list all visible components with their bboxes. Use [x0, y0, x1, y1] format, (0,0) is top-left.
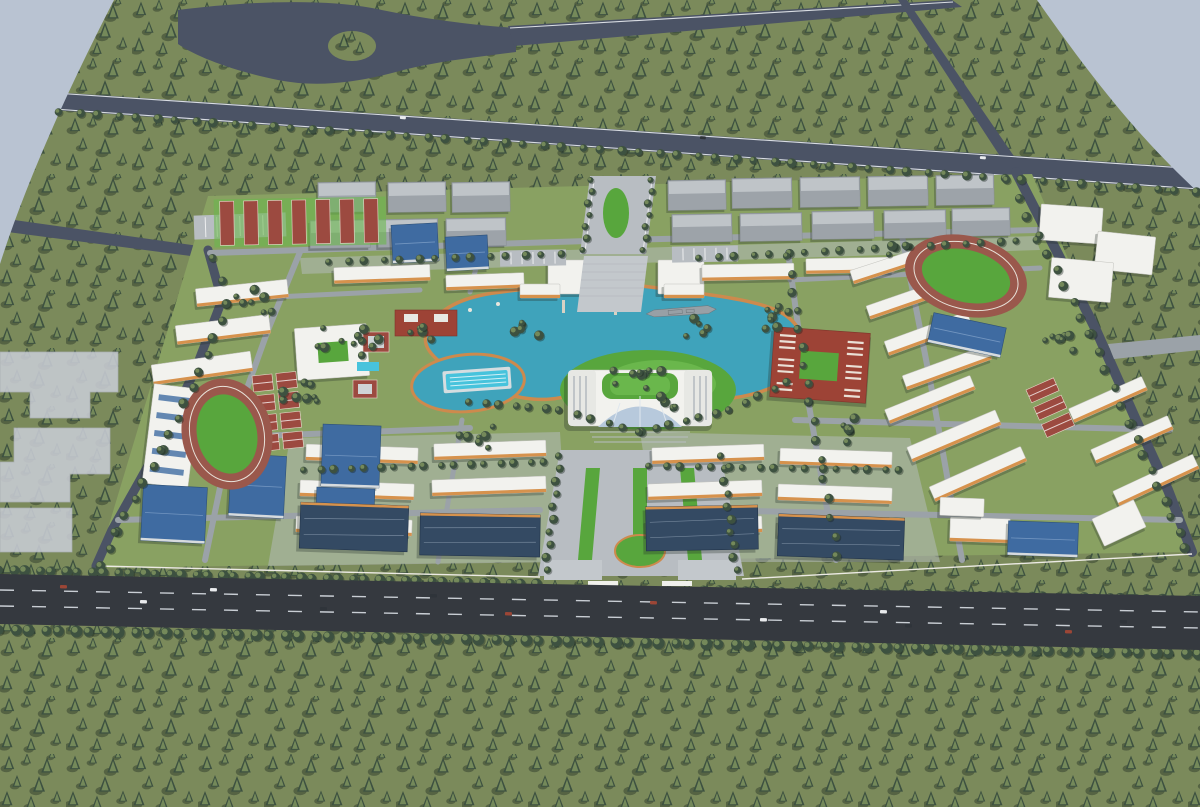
building [443, 273, 524, 294]
building [662, 284, 705, 301]
warehouse [450, 181, 511, 215]
blue-roof-hall [1005, 521, 1079, 561]
red-courtyard-library [766, 327, 871, 408]
main-building-complex [560, 350, 736, 442]
car [400, 116, 406, 119]
warehouse [810, 210, 875, 242]
scene-svg [0, 0, 1200, 807]
building [1046, 257, 1114, 305]
building [775, 484, 892, 507]
car [980, 156, 986, 159]
navy-roof-hall [643, 505, 759, 554]
warehouse [730, 177, 793, 211]
building [429, 476, 546, 499]
car [1065, 630, 1072, 634]
building [699, 263, 794, 284]
car [320, 607, 327, 611]
navy-roof-hall [417, 513, 541, 561]
car [210, 588, 217, 592]
car [505, 612, 512, 616]
car [650, 601, 657, 605]
car [1120, 620, 1127, 624]
car [905, 624, 912, 628]
building [518, 284, 561, 301]
warehouse [738, 212, 803, 244]
building [331, 264, 430, 286]
warehouse [866, 175, 929, 209]
warehouse [670, 213, 733, 245]
car [880, 610, 887, 614]
northwest-clay-fields [214, 197, 387, 248]
car [760, 618, 767, 622]
building [645, 480, 762, 503]
building [937, 497, 984, 520]
south-gate-bar [662, 581, 692, 586]
blue-roof-hall [443, 235, 489, 274]
building [1036, 204, 1103, 247]
car [430, 594, 437, 598]
car [60, 585, 67, 589]
campus-aerial-rendering [0, 0, 1200, 807]
car [700, 136, 706, 139]
blue-roof-hall [318, 424, 381, 491]
blue-roof-hall [138, 484, 207, 546]
warehouse [386, 181, 447, 215]
pier [562, 300, 565, 313]
car [140, 600, 147, 604]
building [947, 517, 1010, 546]
north-gate-complex [577, 256, 648, 312]
navy-roof-hall [296, 502, 409, 555]
warehouse [950, 207, 1011, 239]
warehouse [666, 179, 727, 213]
warehouse [798, 176, 861, 210]
parking-lot [672, 245, 738, 262]
